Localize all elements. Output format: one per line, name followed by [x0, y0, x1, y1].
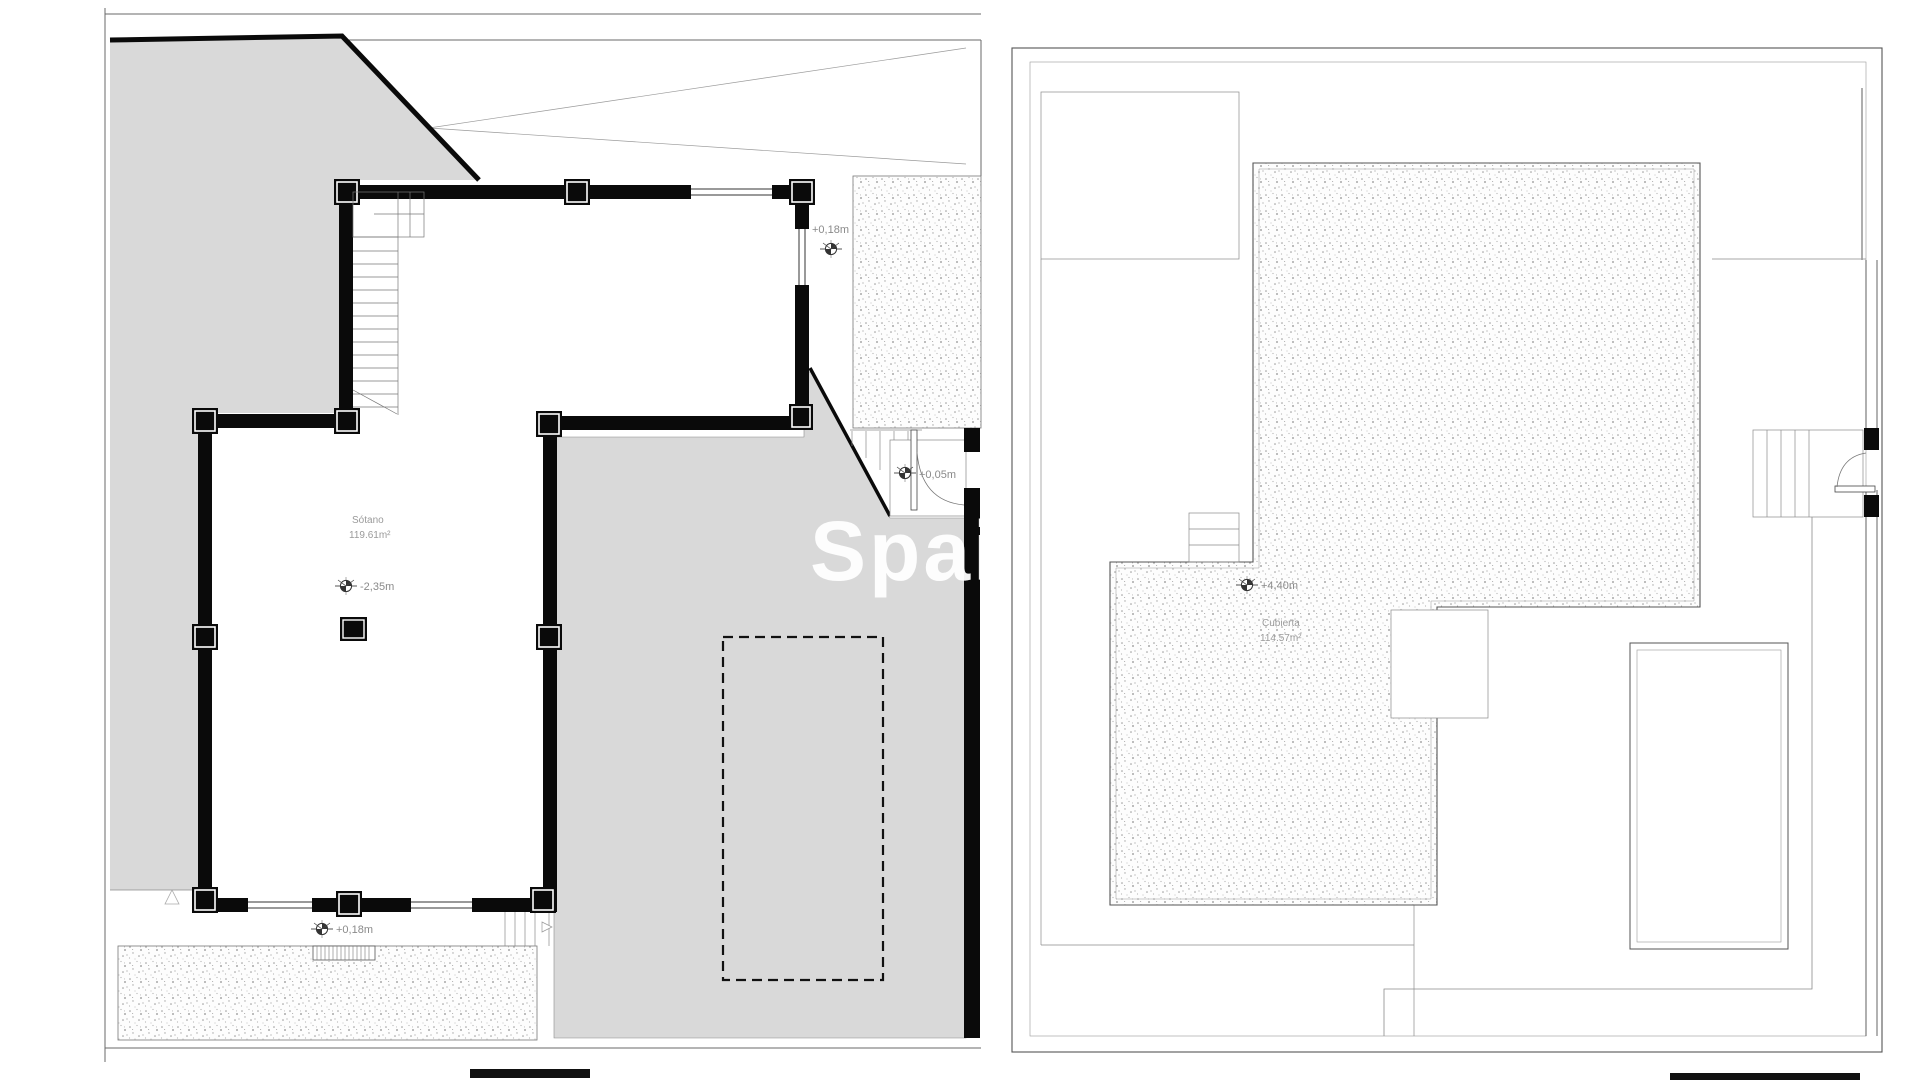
room-area: 114.57m² [1260, 633, 1302, 644]
level-label-center: -2,35m [360, 581, 394, 593]
window-bottom-right [408, 898, 475, 912]
window-right [795, 226, 809, 288]
floor-plans-drawing: +0,18m +0,05m -2,35m +0,18m Sótano 119.6… [0, 0, 1920, 1080]
scale-bar-fragment [470, 1069, 590, 1078]
window-bottom-left [245, 898, 315, 912]
entry-grate [313, 946, 375, 960]
roof-pool [1630, 643, 1788, 949]
watermark: Spain [810, 504, 1054, 598]
level-label-top-right: +0,18m [812, 224, 849, 236]
level-label-door: +0,05m [919, 469, 956, 481]
room-name: Cubierta [1262, 618, 1300, 629]
level-label-roof: +4,40m [1261, 580, 1298, 592]
window-top [688, 185, 775, 199]
room-area: 119.61m² [349, 530, 391, 541]
free-pillar [340, 617, 367, 641]
door-leaf [911, 430, 917, 510]
room-name: Sótano [352, 515, 384, 526]
floor-plan-sheet: +0,18m +0,05m -2,35m +0,18m Sótano 119.6… [0, 0, 1920, 1080]
door-leaf [1835, 486, 1875, 492]
scale-bar-fragment [1670, 1073, 1860, 1080]
stair-void [1391, 610, 1488, 718]
level-label-bottom: +0,18m [336, 924, 373, 936]
gravel-band-top-right [853, 176, 981, 428]
